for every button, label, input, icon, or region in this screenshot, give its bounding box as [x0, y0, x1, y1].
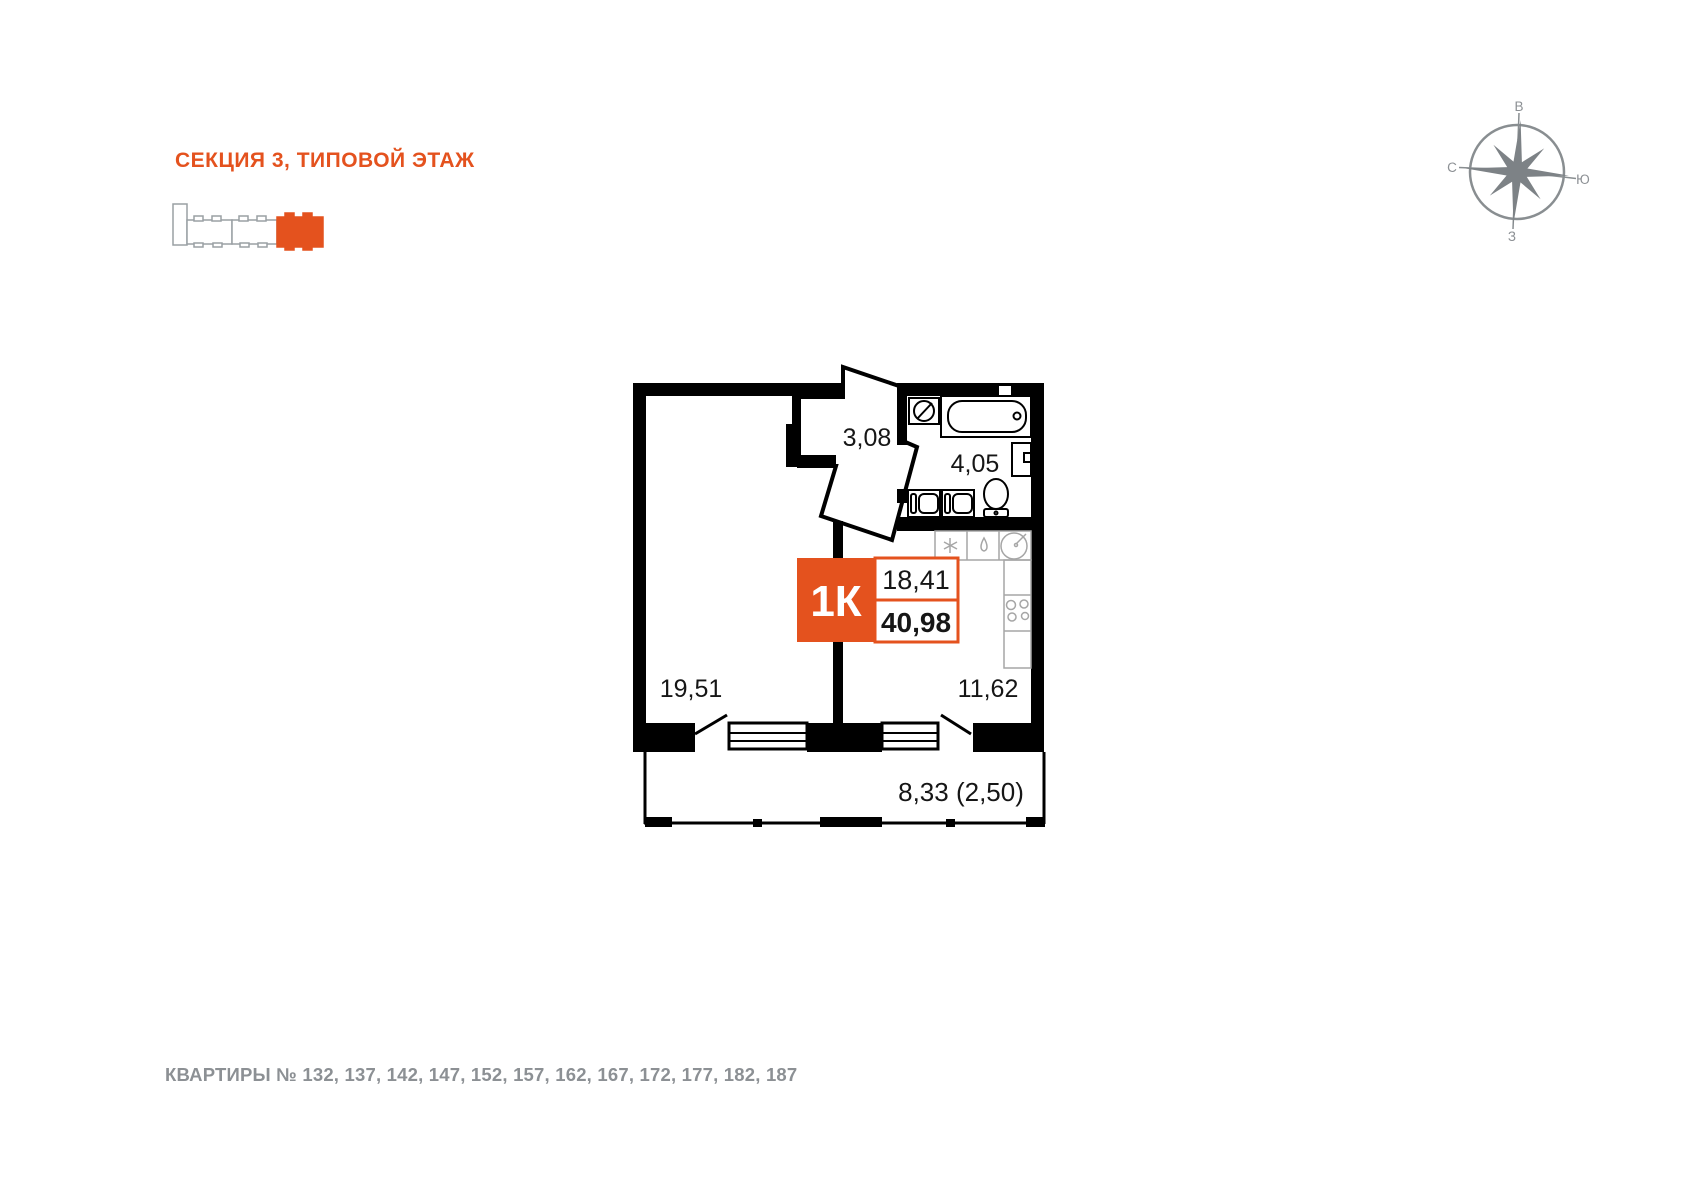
badge-type-label: 1К	[810, 577, 861, 626]
floor-plan-svg: СЕКЦИЯ 3, ТИПОВОЙ ЭТАЖ В С	[0, 0, 1684, 1192]
apartments-list: КВАРТИРЫ № 132, 137, 142, 147, 152, 157,…	[165, 1064, 797, 1085]
bathroom-cabinet-icon	[1012, 443, 1031, 476]
wall-right	[1031, 383, 1044, 752]
bathroom-area-label: 4,05	[951, 450, 1000, 478]
bathtub-icon	[941, 396, 1031, 437]
wall-bathroom-bottom	[897, 517, 1031, 531]
building-block-2	[232, 216, 277, 247]
wall-top-right	[897, 383, 1044, 396]
wall-bottom-right	[973, 723, 1044, 752]
balcony-door-living	[695, 715, 727, 734]
toilet-icon	[984, 479, 1008, 517]
wall-hallway-partition-lower	[786, 424, 799, 467]
kitchen-sink-icon	[1001, 533, 1027, 559]
wall-bathroom-left-lower	[897, 489, 907, 503]
wall-bottom-center	[807, 723, 882, 752]
hallway-area-label: 3,08	[843, 424, 892, 452]
drop-icon	[981, 538, 987, 551]
badge-room-area-value: 18,41	[882, 565, 950, 595]
compass-label-right: Ю	[1576, 172, 1590, 187]
compass-label-left: С	[1447, 160, 1457, 175]
building-block-1	[187, 216, 232, 247]
section-title: СЕКЦИЯ 3, ТИПОВОЙ ЭТАЖ	[175, 148, 475, 172]
washing-machine-icon	[942, 490, 974, 517]
washbasin-icon	[909, 398, 939, 424]
floorplan-page: СЕКЦИЯ 3, ТИПОВОЙ ЭТАЖ В С	[0, 0, 1684, 1192]
building-location-schematic	[173, 204, 323, 250]
badge-total-area-value: 40,98	[881, 607, 951, 638]
building-tower	[173, 204, 187, 245]
balcony-area-label: 8,33 (2,50)	[898, 777, 1024, 807]
building-block-highlighted	[277, 213, 323, 250]
wall-bathroom-left	[897, 396, 907, 445]
compass-label-bottom: З	[1508, 229, 1516, 244]
wall-bottom-left	[633, 723, 695, 752]
wall-top-left	[633, 383, 841, 396]
wall-left	[633, 383, 646, 752]
window-kitchen	[882, 723, 938, 749]
fridge-icon	[944, 538, 957, 553]
washing-machine-icon	[908, 490, 940, 517]
compass-star-icon	[1465, 120, 1569, 224]
kitchen-area-label: 11,62	[958, 675, 1019, 703]
living-area-label: 19,51	[660, 675, 723, 703]
apartment-badge: 1К 18,41 40,98	[797, 558, 958, 642]
window-living	[729, 723, 807, 749]
compass-rose-icon: В С Ю З	[1447, 99, 1590, 244]
compass-label-top: В	[1514, 99, 1523, 114]
wall-hallway-partition-horiz	[799, 455, 836, 467]
balcony-door-kitchen	[941, 715, 971, 734]
stove-icon	[1007, 600, 1029, 621]
wall-hallway-partition-upper	[792, 396, 800, 424]
